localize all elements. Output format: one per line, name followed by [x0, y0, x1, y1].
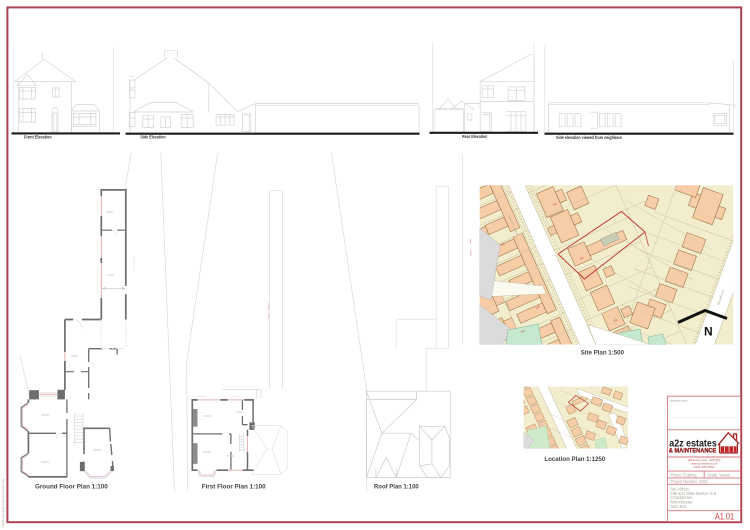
svg-text:& MAINTENANCE: & MAINTENANCE [669, 448, 717, 454]
svg-text:Scale: Varies: Scale: Varies [707, 473, 731, 478]
svg-text:Rear Elevation: Rear Elevation [462, 134, 488, 139]
svg-text:Location Plan 1:1250: Location Plan 1:1250 [544, 456, 605, 463]
svg-text:Roof Plan 1:100: Roof Plan 1:100 [374, 484, 419, 491]
svg-text:M40 3HZ: M40 3HZ [671, 504, 686, 509]
svg-text:A1.01: A1.01 [715, 511, 734, 521]
svg-text:Phase: Existing: Phase: Existing [671, 473, 697, 478]
svg-text:Project Number: 2002: Project Number: 2002 [671, 479, 708, 484]
svg-text:Side elevation viewed from nei: Side elevation viewed from neighbour [556, 135, 622, 140]
svg-text:First Floor Plan 1:100: First Floor Plan 1:100 [202, 484, 266, 491]
svg-text:Drawing produced using a2z est: Drawing produced using a2z estates CAD [1, 479, 5, 527]
svg-text:Site Plan 1:500: Site Plan 1:500 [581, 350, 625, 357]
svg-text:0161 425 0061: 0161 425 0061 [694, 465, 715, 469]
svg-text:Front Elevation: Front Elevation [24, 135, 52, 140]
svg-text:additional notes:: additional notes: [670, 399, 688, 402]
svg-text:N: N [704, 325, 713, 339]
svg-text:Ground Floor Plan 1:100: Ground Floor Plan 1:100 [35, 483, 108, 490]
svg-text:Side Elevation: Side Elevation [140, 135, 165, 140]
